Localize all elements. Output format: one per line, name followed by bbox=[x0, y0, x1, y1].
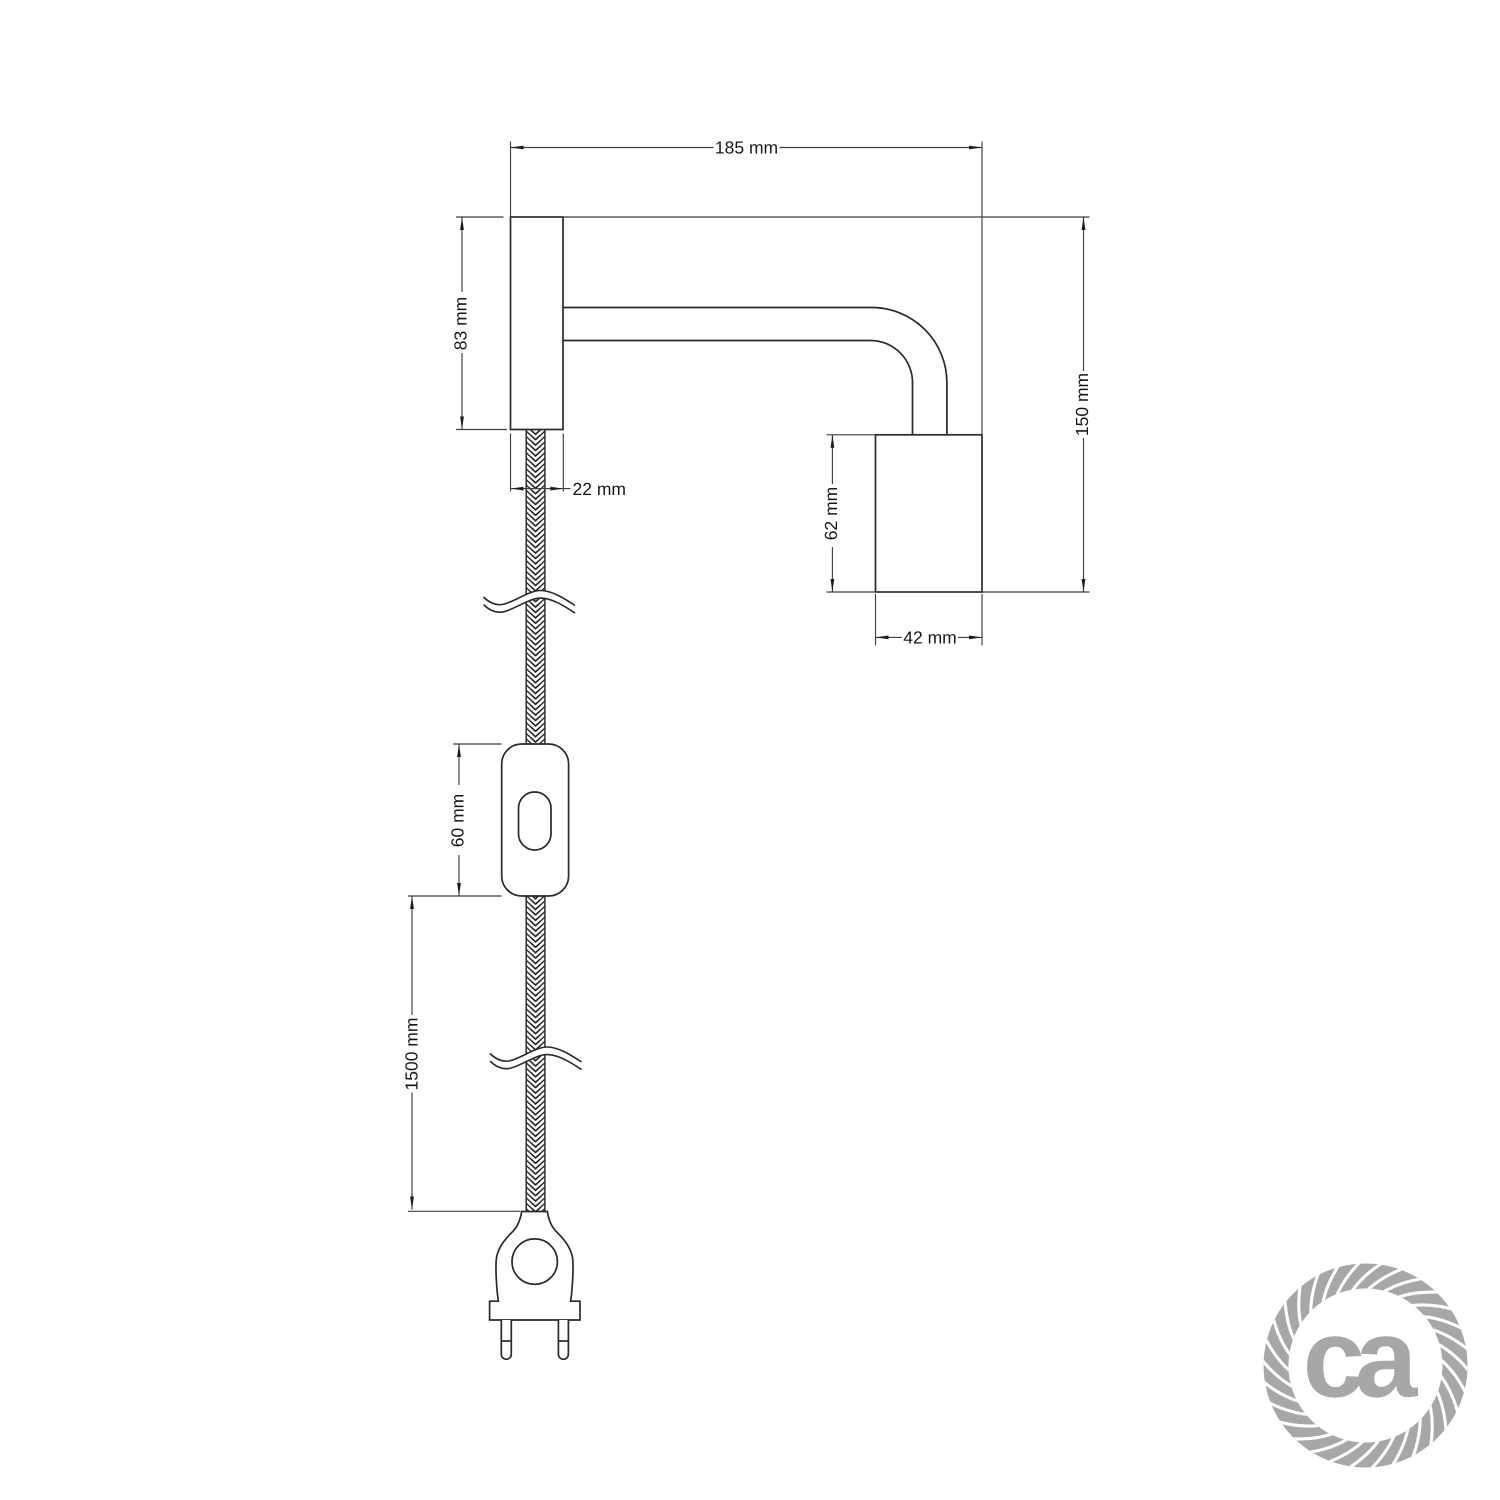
svg-text:185 mm: 185 mm bbox=[715, 138, 778, 158]
svg-text:42 mm: 42 mm bbox=[903, 628, 956, 648]
svg-text:ca: ca bbox=[1303, 1296, 1418, 1421]
svg-text:62 mm: 62 mm bbox=[821, 487, 841, 540]
svg-text:60 mm: 60 mm bbox=[448, 794, 468, 847]
svg-text:1500 mm: 1500 mm bbox=[402, 1018, 422, 1091]
svg-text:83 mm: 83 mm bbox=[451, 297, 471, 350]
svg-text:150 mm: 150 mm bbox=[1072, 373, 1092, 436]
svg-text:22 mm: 22 mm bbox=[573, 479, 626, 499]
